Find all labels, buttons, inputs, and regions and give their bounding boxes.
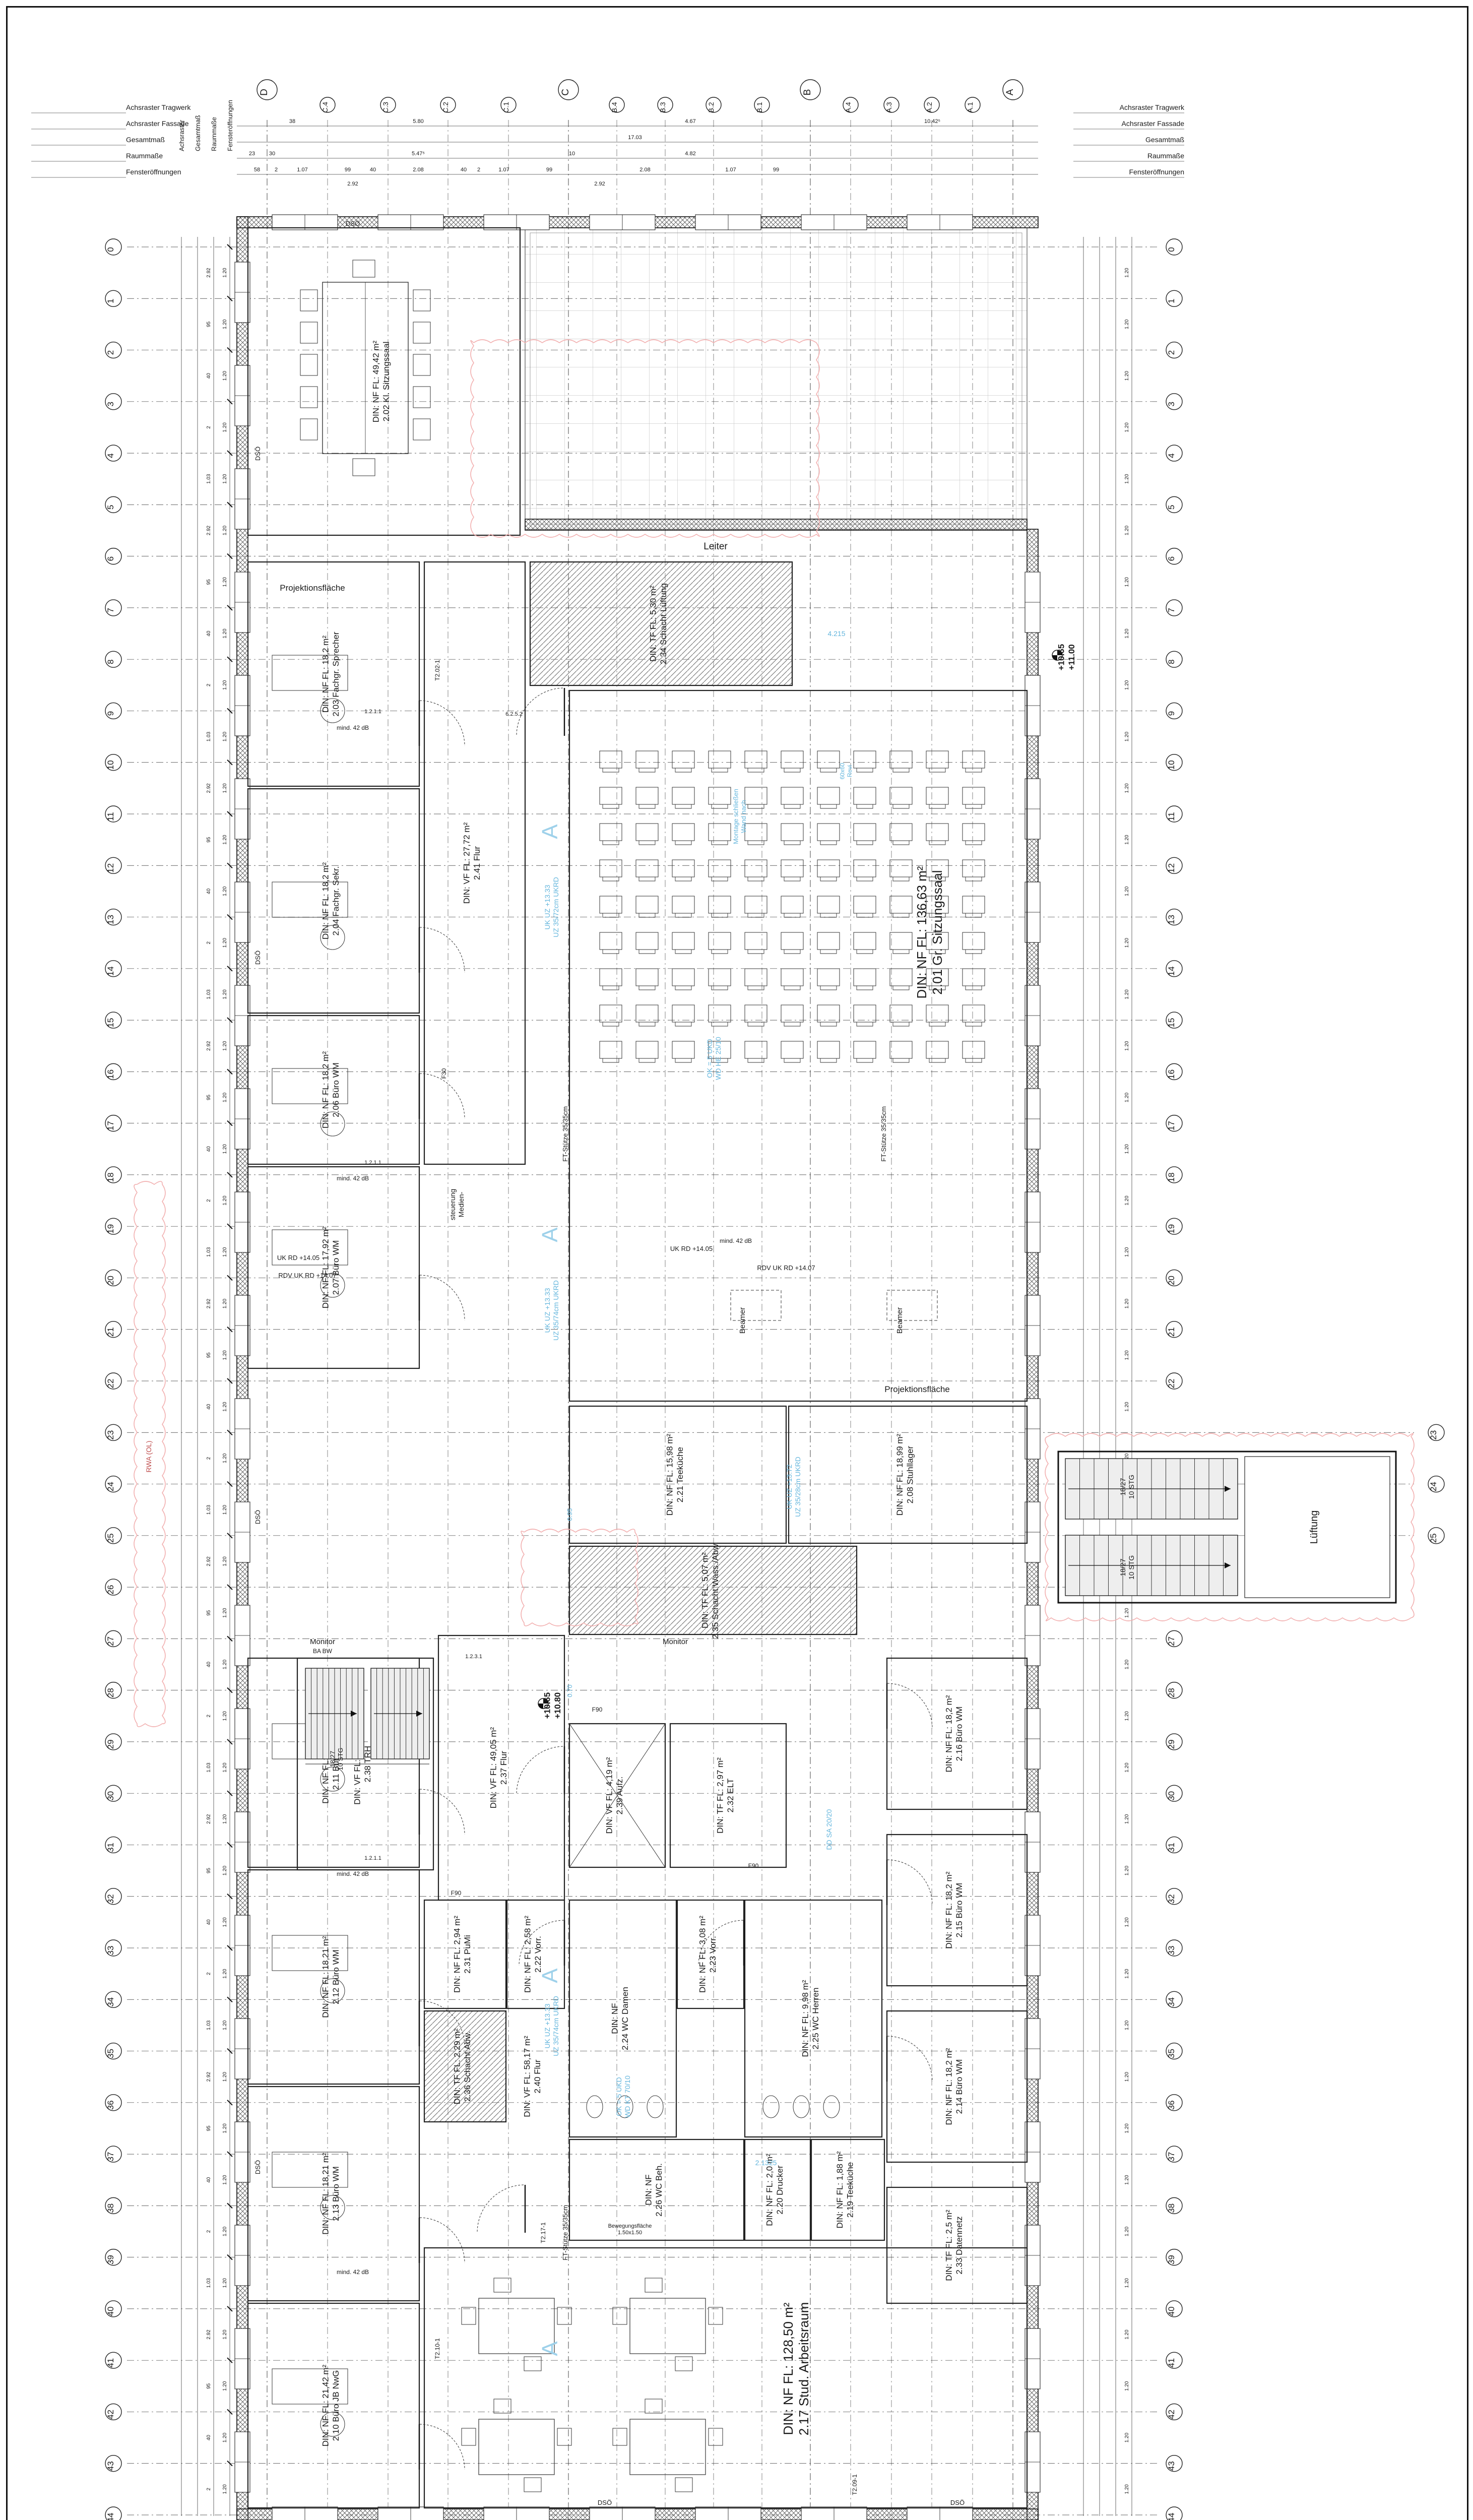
roof-terrace [525, 228, 1027, 529]
axis-bubble-number: 38 [106, 2203, 115, 2213]
annotation: T2.17-1 [540, 2222, 547, 2243]
room-2-35: 2.35 Schacht Wass./Abw.DIN: TF FL: 5,07 … [569, 1542, 857, 1639]
dim-number: 1.20 [222, 731, 228, 741]
annotation: FT-Stütze 35/35cm [561, 1106, 569, 1162]
axis-bubble-number: 18 [106, 1172, 115, 1182]
axis-bubble-number: 29 [1167, 1739, 1176, 1749]
dim-number: 95 [206, 1352, 212, 1358]
ext-stair-label: Lüftung [1309, 1510, 1320, 1544]
axis-bubble-letter: B.3 [659, 102, 667, 112]
dim-number: 2 [206, 1457, 212, 1460]
axis-bubble-number: 40 [106, 2306, 115, 2316]
room-label: DIN: NF FL: 3,08 m² [698, 1916, 708, 1993]
annotation: F90 [592, 1706, 603, 1713]
dim-number: 1.20 [222, 2123, 228, 2133]
axis-bubble-number: 7 [1167, 608, 1176, 612]
annotation: 4.215 [827, 629, 845, 638]
dim-number: 2 [206, 941, 212, 944]
dim-number: 1.20 [222, 1608, 228, 1618]
room-label: DIN: VF FL: 4,19 m² [605, 1757, 614, 1834]
annotation: UZ 35/72cm UKRD [552, 877, 560, 937]
room-2-01: 2.01 Gr. SitzungssaalDIN: NF FL: 136,63 … [569, 690, 1027, 1401]
annotation: 1.2.1.1 [364, 709, 381, 715]
dim-number: 1.20 [1124, 680, 1130, 690]
room-2-22: 2.22 Vorr.DIN: NF FL: 2,58 m² [507, 1900, 564, 2008]
room-label: 2.17 Stud. Arbeitsraum [796, 2302, 811, 2435]
room-label: DIN: NF FL: 18,21 m² [321, 1936, 331, 2018]
window [590, 215, 655, 230]
room-label: 2.26 WC Beh. [654, 2163, 664, 2217]
window [907, 2507, 973, 2520]
chain-corner-label: Fensteröffnungen [126, 168, 181, 176]
dim-number: 2.92 [206, 268, 212, 278]
annotation: RDV UK RD +14.07 [278, 1272, 336, 1279]
annotation: OK = 5 UKD [706, 1039, 714, 1078]
axis-bubble-number: 3 [106, 402, 115, 406]
dim-number: 40 [370, 167, 376, 173]
annotation: UK UZ +13.33 [543, 2003, 551, 2048]
level-mark-text: +10.65 [543, 1692, 552, 1719]
axis-bubble-number: 9 [106, 711, 115, 716]
axis-bubble-number: 29 [106, 1739, 115, 1749]
floor-plan: 0011223344556677889910101111121213131414… [0, 0, 1473, 2520]
room-label: DIN: NF FL: 2,94 m² [453, 1916, 462, 1993]
dim-number: 17.03 [628, 135, 642, 141]
axis-bubble-number: 43 [1167, 2461, 1176, 2471]
axis-bubble-number: 30 [1167, 1791, 1176, 1801]
dim-number: 1.20 [1124, 1144, 1130, 1154]
chain-corner-label: Raummaße [126, 152, 163, 160]
axis-bubble-number: 36 [1167, 2100, 1176, 2110]
annotation: UK UZ +13.72 [785, 1464, 793, 1509]
dim-number: 1.20 [1124, 2278, 1130, 2288]
axis-bubble-number: 41 [1167, 2358, 1176, 2368]
dim-number: 99 [773, 167, 779, 173]
room-2-08: 2.08 StuhllagerDIN: NF FL: 18,99 m² [789, 1406, 1027, 1543]
axis-bubble-letter: D [259, 89, 270, 96]
axis-bubble-number: 25 [106, 1533, 115, 1543]
dim-number: 2.08 [639, 167, 650, 173]
annotation: RDV UK RD +14.07 [757, 1264, 815, 1272]
axis-bubble-number: 14 [1167, 966, 1176, 976]
room-label: 2.31 PuMi [463, 1935, 472, 1974]
axis-bubble-number: 28 [1167, 1688, 1176, 1697]
window [484, 2507, 549, 2520]
dim-number: 1.20 [1124, 886, 1130, 896]
dim-number: 1.20 [222, 680, 228, 690]
axis-bubble-number: 8 [1167, 659, 1176, 664]
room-label: DIN: VF FL: 58,17 m² [523, 2036, 532, 2117]
room-label: DIN: NF FL: 18,2 m² [944, 1871, 954, 1948]
stair-text: 18/27 [1119, 1558, 1127, 1576]
chain-corner-label: Gesamtmaß [126, 136, 165, 144]
dim-number: 1.20 [1124, 628, 1130, 639]
window [801, 2507, 867, 2520]
axis-bubble-number: 43 [106, 2461, 115, 2471]
dim-number: 1.20 [222, 2329, 228, 2340]
axis-bubble-number: 37 [1167, 2152, 1176, 2162]
dim-number: 1.20 [222, 525, 228, 535]
room-label: 2.32 ELT [726, 1779, 735, 1813]
annotation: mind. 42 dB [337, 2269, 369, 2276]
annotation: mind. 42 dB [337, 1870, 369, 1877]
axis-bubble-number: 20 [106, 1276, 115, 1285]
dim-number: 40 [206, 631, 212, 637]
annotation: 1.2.1.1 [364, 1160, 381, 1166]
dim-number: 2.08 [413, 167, 423, 173]
room-label: 2.25 WC Herren [811, 1988, 820, 2050]
axis-bubble-letter: C.3 [381, 102, 390, 113]
room-label: DIN: NF FL: 1,88 m² [835, 2151, 845, 2228]
axis-bubble-number: 44 [106, 2513, 115, 2520]
room-2-15: 2.15 Büro WMDIN: NF FL: 18,2 m² [887, 1835, 1027, 1986]
annotation: T2.10-1 [434, 2338, 441, 2359]
dim-number: 1.20 [222, 2020, 228, 2030]
annotation: F90 [451, 1889, 462, 1897]
annotation: UK RD +14.05 [670, 1245, 713, 1252]
axis-bubble-number: 34 [1167, 1997, 1176, 2007]
room-2-10: 2.10 Büro JB NwGDIN: NF FL: 21,42 m² [248, 2303, 419, 2508]
chain-corner-label: Fensteröffnungen [1129, 168, 1185, 176]
annotation: FT-Stütze 35/35cm [561, 2205, 569, 2260]
axis-bubble-number: 0 [106, 247, 115, 251]
axis-bubble-letter: A.4 [844, 102, 852, 112]
dim-number: 1.20 [1124, 319, 1130, 329]
room-2-41: 2.41 FlurDIN: VF FL: 27,72 m² [424, 562, 525, 1164]
dim-number: 1.20 [222, 989, 228, 999]
axis-bubble-number: 40 [1167, 2306, 1176, 2316]
dim-number: 1.20 [222, 2072, 228, 2082]
dim-number: 1.03 [206, 989, 212, 999]
axis-bubble-number: 15 [106, 1018, 115, 1028]
annotation: UZ 35/74cm UKRD [552, 1280, 560, 1341]
axis-bubble-letter: C [560, 89, 571, 96]
dim-number: 1.20 [1124, 1814, 1130, 1824]
annotation: A [538, 1968, 562, 1983]
room-2-36: 2.36 Schacht Abw.DIN: TF FL: 2,29 m² [424, 2011, 506, 2122]
dim-number: 1.20 [1124, 2072, 1130, 2082]
dim-number: 2 [275, 167, 278, 173]
annotation: 1.2.3.1 [465, 1654, 482, 1660]
dim-number: 1.20 [1124, 2381, 1130, 2391]
annotation: 1.2.1.1 [364, 1855, 381, 1861]
axis-bubble-number: 41 [106, 2358, 115, 2368]
room-2-17: 2.17 Stud. ArbeitsraumDIN: NF FL: 128,50… [424, 2248, 1027, 2508]
annotation: F30 [440, 1068, 447, 1079]
dim-number: 1.20 [1124, 783, 1130, 793]
annotation: DSÖ [254, 2160, 262, 2174]
room-2-19: 2.19 TeekücheDIN: NF FL: 1,88 m² [811, 2139, 884, 2240]
annotation: Projektionsfläche [280, 583, 345, 593]
room-label: 2.23 Vorr. [708, 1936, 718, 1973]
annotation: Bewegungsfläche [608, 2223, 652, 2229]
dim-number: 1.20 [1124, 2329, 1130, 2340]
axis-bubble-number: 27 [1167, 1636, 1176, 1646]
axis-bubble-number: 35 [106, 2049, 115, 2058]
dim-number: 1.20 [1124, 1092, 1130, 1102]
dim-number: 95 [206, 1610, 212, 1616]
room-2-21: 2.21 TeekücheDIN: NF FL: 15,98 m² [569, 1406, 786, 1543]
dim-number: 1.20 [222, 2381, 228, 2391]
room-label: DIN: NF FL: 9,98 m² [801, 1980, 810, 2057]
axis-bubble-number: 4 [106, 453, 115, 458]
dim-number: 99 [345, 167, 351, 173]
axis-bubble-letter: B.2 [707, 102, 715, 112]
axis-bubble-number: 38 [1167, 2203, 1176, 2213]
room-label: 2.15 Büro WM [954, 1883, 964, 1938]
axis-bubble-number: 21 [106, 1327, 115, 1337]
room-2-16: 2.16 Büro WMDIN: NF FL: 18,2 m² [887, 1658, 1027, 1809]
room-label: DIN: TF FL: 2,5 m² [944, 2210, 954, 2281]
axis-bubble-number: 2 [106, 350, 115, 355]
axis-bubble-number: 3 [1167, 402, 1176, 406]
room-label: 2.12 Büro WM [331, 1949, 341, 2004]
dim-number: 4.82 [685, 151, 695, 157]
drawing-sheet: 0011223344556677889910101111121213131414… [0, 0, 1473, 2520]
dim-number: 1.20 [1124, 268, 1130, 278]
dim-number: 5.47⁵ [412, 151, 425, 157]
dim-number: 1.03 [206, 2278, 212, 2288]
axis-bubble-number: 6 [1167, 556, 1176, 561]
dim-number: 2 [206, 2230, 212, 2233]
dim-number: 1.20 [1124, 1865, 1130, 1875]
axis-bubble-number: 10 [106, 760, 115, 770]
dim-number: 1.20 [222, 1247, 228, 1257]
axis-bubble-number: 13 [106, 915, 115, 924]
dim-number: 99 [546, 167, 552, 173]
room-label: 2.22 Vorr. [533, 1936, 543, 1973]
room-label: 2.07 Büro WM [331, 1240, 341, 1295]
annotation: Beamer [738, 1307, 747, 1334]
dim-number: 1.07 [498, 167, 509, 173]
room-label: 2.10 Büro JB NwG [331, 2370, 341, 2441]
axis-bubble-number: 34 [106, 1997, 115, 2007]
dim-number: 1.20 [222, 577, 228, 587]
dim-number: 1.20 [222, 319, 228, 329]
dim-number: 1.20 [222, 1298, 228, 1308]
dim-number: 40 [206, 373, 212, 379]
dim-number: 1.20 [1124, 525, 1130, 535]
axis-bubble-number: 32 [1167, 1894, 1176, 1904]
annotation: DSÖ [254, 951, 262, 965]
axis-bubble-number: 23 [106, 1430, 115, 1440]
room-label: 2.06 Büro WM [331, 1062, 341, 1117]
axis-bubble-number: 16 [106, 1069, 115, 1079]
chain-corner-label: Achsraster Fassade [1122, 119, 1185, 128]
dim-number: 2.92 [206, 525, 212, 535]
dim-number: 1.20 [222, 371, 228, 381]
annotation: 6.2.5.2 [505, 711, 523, 717]
axis-bubble-number: 33 [106, 1946, 115, 1956]
annotation: mind. 42 dB [337, 724, 369, 731]
annotation: UZ 35/74cm UKRD [552, 1996, 560, 2056]
axis-bubble-letter: B.4 [610, 102, 618, 112]
dim-number: 4.67 [685, 118, 695, 124]
annotation: DSÖ [598, 2499, 612, 2506]
room-label: DIN: NF FL: 49,42 m² [371, 340, 381, 422]
dim-number: 2 [206, 1715, 212, 1718]
dim-number: 95 [206, 321, 212, 327]
axis-bubble-letter: A.3 [885, 102, 893, 112]
annotation: Montage schließen [732, 789, 739, 844]
dim-number: 1.20 [222, 1350, 228, 1360]
axis-bubble-number: 22 [1167, 1379, 1176, 1389]
annotation: 60x60 [839, 763, 846, 779]
room-label: DIN: NF FL: 18,99 m² [895, 1433, 905, 1516]
axis-bubble-number: 42 [106, 2410, 115, 2419]
chain-corner-label: Achsraster Fassade [126, 119, 189, 128]
axis-bubble-number: 11 [1167, 812, 1176, 821]
room-label: DIN: NF FL: 17,92 m² [321, 1226, 331, 1308]
dim-number: 1.20 [222, 268, 228, 278]
axis-bubble-letter: A.1 [966, 102, 974, 112]
room-2-03: 2.03 Fachgr. SprecherDIN: NF FL: 18,2 m² [248, 562, 419, 786]
dim-number: 1.20 [222, 474, 228, 484]
dim-number: 1.20 [222, 2226, 228, 2236]
dim-number: 1.20 [222, 422, 228, 432]
chain-corner-label: Achsraster Tragwerk [126, 103, 191, 111]
annotation: UK UZ +13.33 [543, 885, 551, 929]
axis-bubble-letter: C.1 [502, 102, 510, 113]
window [695, 2507, 761, 2520]
axis-bubble-number: 5 [1167, 505, 1176, 510]
dim-number: 40 [206, 1404, 212, 1410]
annotation: DSÖ [346, 220, 360, 227]
axis-bubble-number: 39 [106, 2255, 115, 2264]
axis-bubble-number: 32 [106, 1894, 115, 1904]
annotation: Monitor [310, 1637, 335, 1646]
chain-corner-label: Raummaße [1147, 152, 1184, 160]
room-label: DIN: TF FL: 2,97 m² [716, 1757, 725, 1834]
room-label: 2.40 Flur [533, 2059, 542, 2093]
dim-number: 1.20 [1124, 989, 1130, 999]
exterior-walls [235, 215, 1040, 2520]
annotation: BA BW [313, 1648, 333, 1655]
dim-number: 1.20 [1124, 1608, 1130, 1618]
axis-bubble-number: 14 [106, 966, 115, 976]
window [1025, 1605, 1040, 1666]
dim-number: 1.20 [222, 2432, 228, 2442]
dim-number: 40 [206, 2435, 212, 2441]
dim-number: 1.20 [1124, 1247, 1130, 1257]
window [235, 1502, 250, 1562]
annotation: 10 STG [337, 1748, 344, 1771]
axis-bubble-number: 10 [1167, 760, 1176, 770]
dim-number: 2 [477, 167, 480, 173]
dim-number: 1.20 [1124, 2432, 1130, 2442]
room-label: 2.34 Schacht Lüftung [659, 583, 668, 664]
dim-number: 1.20 [222, 1144, 228, 1154]
window [235, 1605, 250, 1666]
room-label: 2.14 Büro WM [954, 2059, 964, 2114]
axis-bubble-number: 21 [1167, 1327, 1176, 1337]
room-label: DIN: TF FL: 5,30 m² [649, 586, 658, 662]
dim-number: 1.20 [1124, 371, 1130, 381]
axis-bubble-number: 28 [106, 1688, 115, 1697]
room-label: DIN: VF FL: 49,05 m² [489, 1727, 498, 1808]
dim-number: 1.20 [1124, 577, 1130, 587]
annotation: DSÖ [950, 2499, 965, 2506]
axis-bubble-number: 0 [1167, 247, 1176, 251]
room-label: 2.37 Flur [499, 1751, 508, 1785]
annotation: T2.02-1 [434, 660, 441, 681]
dim-number: 2 [206, 426, 212, 429]
dim-number: 1.20 [222, 1505, 228, 1515]
chain-label: Gesamtmaß [194, 115, 202, 151]
annotation: WD HE 25/10 [714, 1037, 722, 1080]
dim-number: 40 [206, 1662, 212, 1668]
annotation: 18/27 [329, 1751, 336, 1768]
dim-number: 1.20 [1124, 1350, 1130, 1360]
window [272, 2507, 338, 2520]
axis-bubble-number: 2 [1167, 350, 1176, 355]
stair-text: 10 STG [1127, 1555, 1135, 1580]
dim-number: 1.03 [206, 2020, 212, 2030]
dim-number: 1.20 [1124, 2484, 1130, 2494]
annotation: Projektionsfläche [884, 1384, 949, 1394]
axis-bubble-number: 35 [1167, 2049, 1176, 2058]
dim-number: 2.92 [594, 181, 605, 187]
dim-number: 1.20 [222, 1195, 228, 1206]
window [801, 215, 867, 230]
dim-number: 95 [206, 579, 212, 585]
room-2-25: 2.25 WC HerrenDIN: NF FL: 9,98 m² [745, 1900, 882, 2137]
dim-number: 1.20 [222, 1969, 228, 1979]
axis-bubble-number: 39 [1167, 2255, 1176, 2264]
dim-number: 1.20 [1124, 1762, 1130, 1773]
dim-number: 2.92 [206, 2072, 212, 2082]
dim-number: 1.20 [222, 1814, 228, 1824]
annotation: UZ 35/28cm UKRD [794, 1457, 802, 1517]
dim-number: 1.20 [1124, 474, 1130, 484]
room-2-40: 2.40 FlurDIN: VF FL: 58,17 m² [523, 2036, 542, 2117]
dim-number: 1.20 [222, 628, 228, 639]
room-label: DIN: NF FL: 18,2 m² [944, 2048, 954, 2125]
rooms: 2.02 Kl. SitzungssaalDIN: NF FL: 49,42 m… [248, 228, 1027, 2508]
axis-bubble-number: 37 [106, 2152, 115, 2162]
room-2-33: 2.33 DatennetzDIN: TF FL: 2,5 m² [887, 2187, 1027, 2303]
annotation: Medien- [457, 1191, 465, 1217]
dim-number: 1.20 [222, 886, 228, 896]
hall-seating [600, 751, 985, 1320]
axis-bubble-letter: B [802, 89, 813, 96]
annotation: Beamer [895, 1307, 904, 1334]
room-label: 2.41 Flur [472, 846, 482, 880]
dim-number: 2 [206, 1972, 212, 1975]
chain-corner-label: Achsraster Tragwerk [1120, 103, 1185, 111]
dim-number: 1.20 [1124, 422, 1130, 432]
dim-number: 58 [254, 167, 260, 173]
dim-number: 2.92 [206, 1556, 212, 1566]
room-2-23: 2.23 Vorr.DIN: NF FL: 3,08 m² [677, 1900, 744, 2008]
dim-number: 1.03 [206, 731, 212, 741]
annotation: 0.70 [566, 1684, 573, 1697]
dim-number: 1.20 [1124, 1917, 1130, 1927]
room-2-14: 2.14 Büro WMDIN: NF FL: 18,2 m² [887, 2011, 1027, 2162]
axis-bubble-number: 11 [106, 812, 115, 821]
dim-number: 40 [206, 1919, 212, 1925]
axis-bubble-number: 4 [1167, 453, 1176, 458]
room-label: 2.35 Schacht Wass./Abw. [711, 1542, 720, 1639]
axis-bubble-number: 44 [1167, 2513, 1176, 2520]
room-label: DIN: NF FL: 18,2 m² [944, 1695, 954, 1772]
axis-bubble-number: 20 [1167, 1276, 1176, 1285]
level-mark-text: +10.65 [1057, 644, 1066, 670]
room-2-31: 2.31 PuMiDIN: NF FL: 2,94 m² [424, 1900, 506, 2008]
room-label: DIN: NF [644, 2174, 654, 2205]
annotation: F90 [748, 1862, 759, 1869]
window [378, 2507, 443, 2520]
